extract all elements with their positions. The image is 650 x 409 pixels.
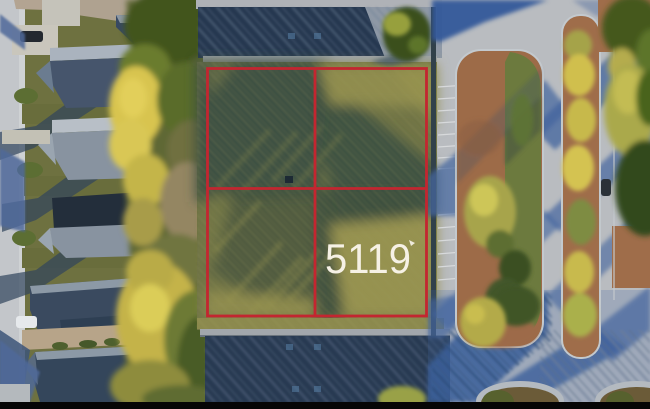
svg-text:5119: 5119	[325, 235, 411, 282]
